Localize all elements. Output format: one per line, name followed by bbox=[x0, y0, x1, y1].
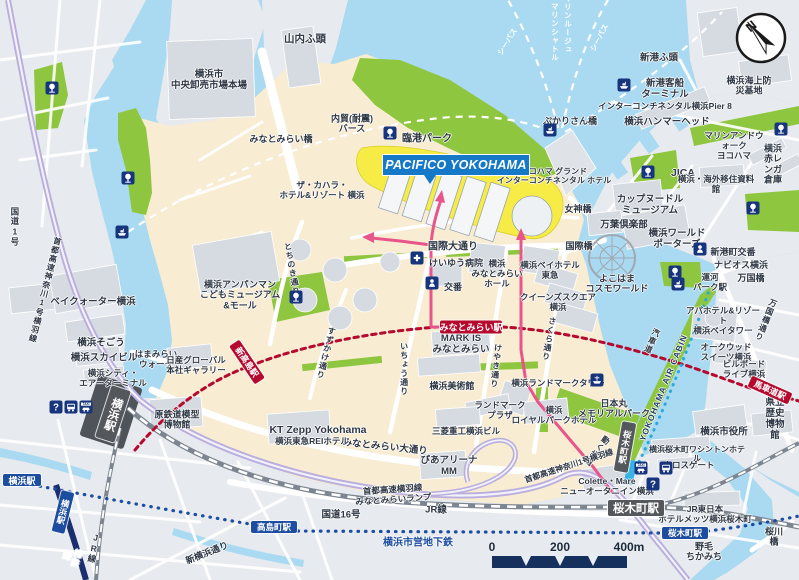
scale-label-400m: 400m bbox=[614, 540, 645, 554]
scale-notch bbox=[521, 556, 531, 566]
minato-mirai-tourist-map: N 横浜市 中央卸売市場本場山内ふ頭内貿(耐震) バース臨港パークみなとみらい橋… bbox=[0, 0, 799, 580]
compass-icon: N bbox=[737, 14, 785, 62]
map-canvas: N bbox=[0, 0, 799, 580]
ferris-wheel bbox=[589, 235, 635, 281]
scale-bar bbox=[492, 556, 627, 568]
scale-label-0: 0 bbox=[489, 540, 496, 554]
pacifico-banner: PACIFICO YOKOHAMA bbox=[383, 155, 529, 175]
pacifico-banner-pointer bbox=[424, 175, 436, 184]
scale-notch bbox=[555, 556, 565, 566]
scale-label-200: 200 bbox=[550, 540, 570, 554]
scale-notch bbox=[588, 556, 598, 566]
